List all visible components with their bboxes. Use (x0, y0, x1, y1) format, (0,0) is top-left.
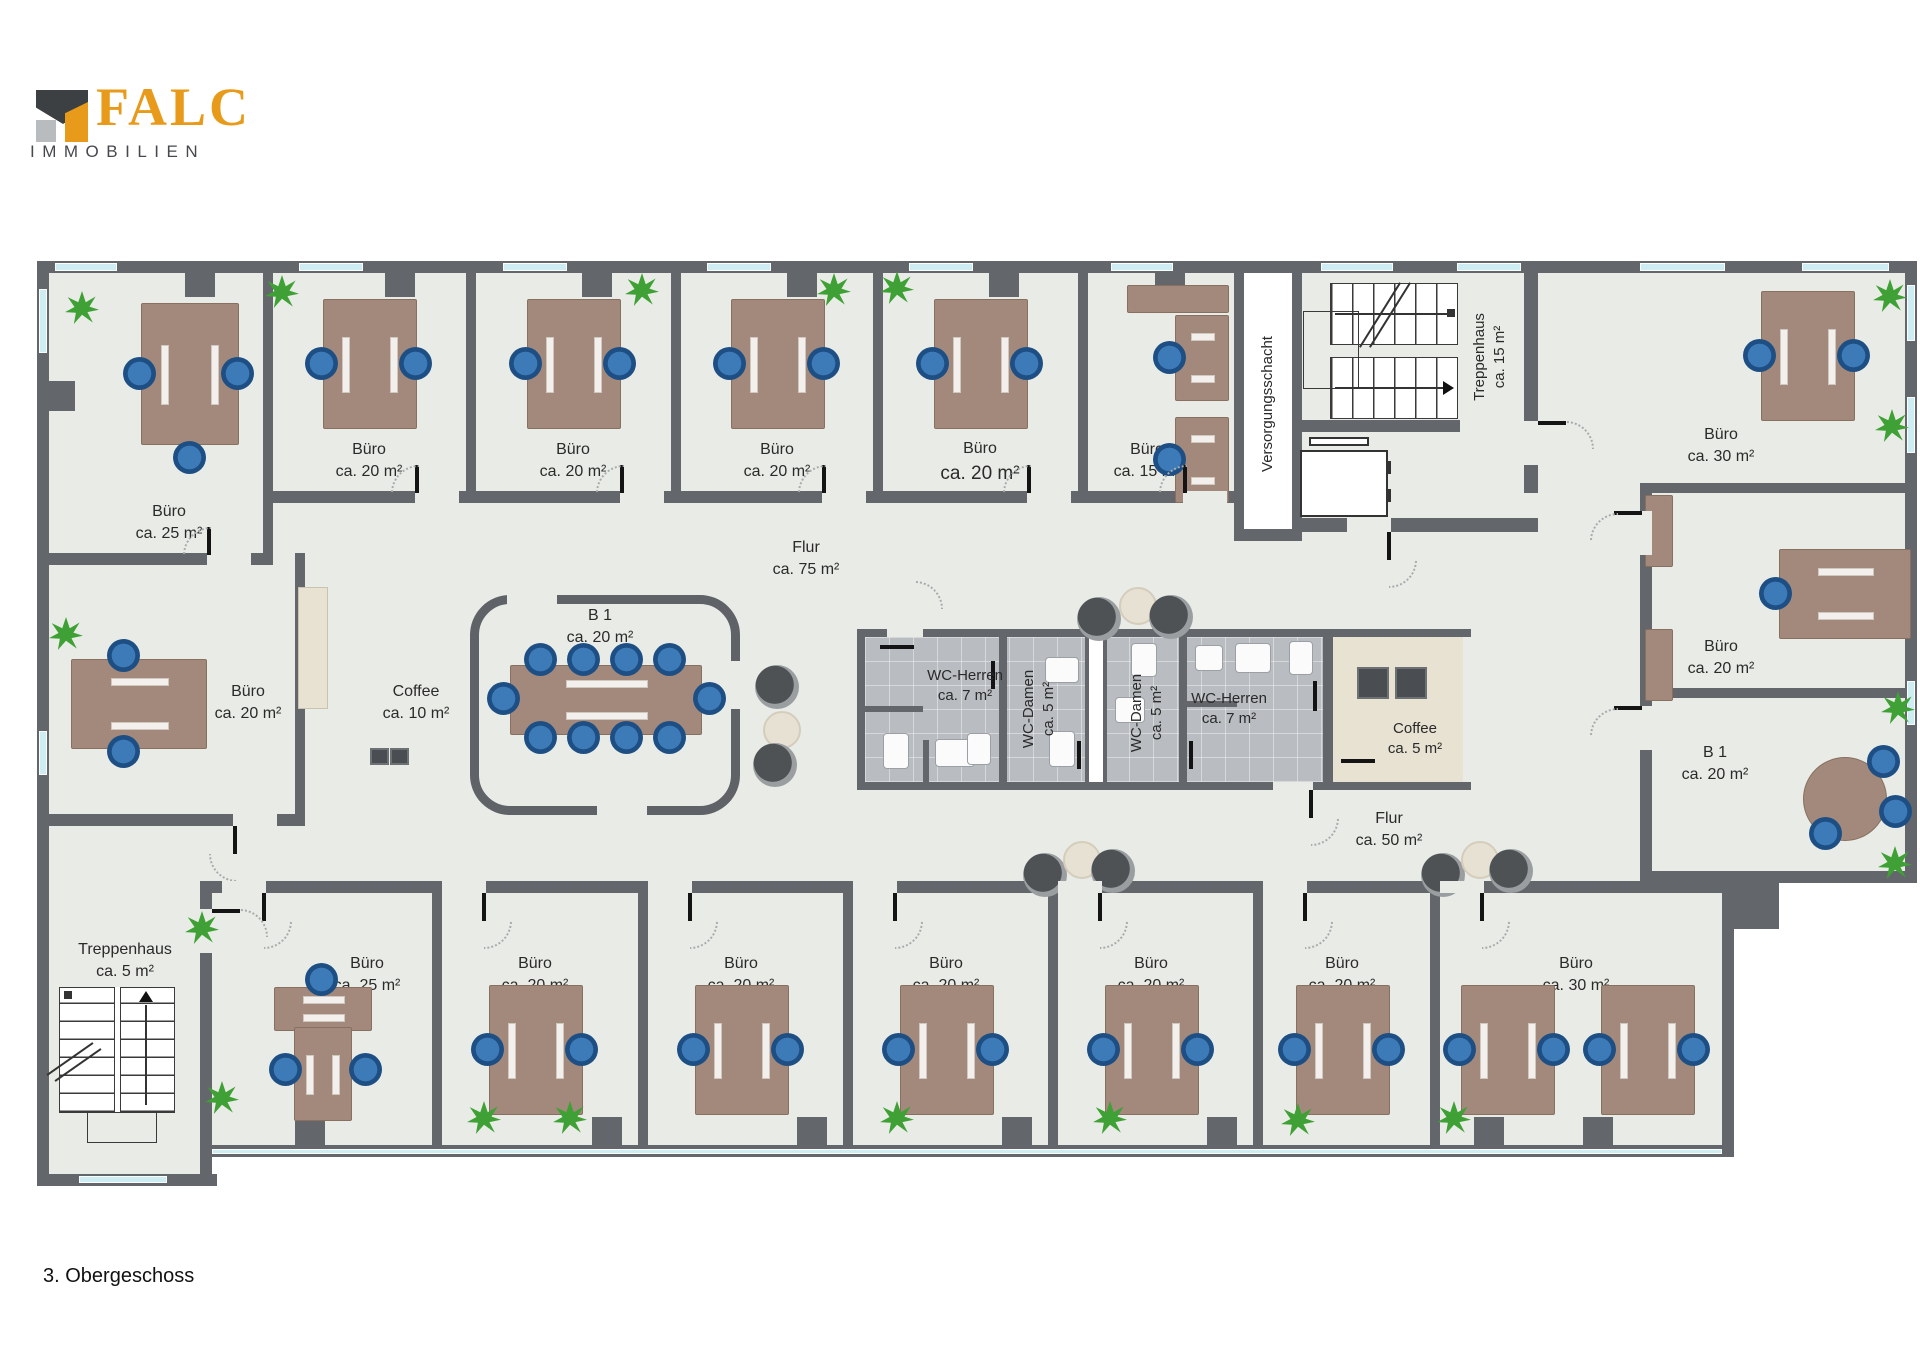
door-opening (1440, 881, 1484, 893)
room-area: ca. 20 m² (1688, 658, 1755, 680)
chair-icon (471, 1033, 504, 1066)
pillar (49, 381, 75, 411)
shaft-label: Versorgungsschacht (1258, 336, 1278, 472)
room-label: WC-Damen ca. 5 m² (1019, 670, 1059, 748)
window (1640, 263, 1725, 271)
stair-guide-line (145, 1005, 147, 1105)
room-area: ca. 5 m² (1147, 674, 1167, 752)
stair-start-dot (1447, 309, 1455, 317)
chair-icon (565, 1033, 598, 1066)
door-leaf (1614, 706, 1642, 710)
chair-icon (349, 1053, 382, 1086)
stool (370, 748, 389, 765)
chair-icon (693, 682, 726, 715)
logo-brand-text: FALC (96, 76, 251, 138)
room-name: WC-Herren (927, 666, 1003, 686)
chair-icon (107, 639, 140, 672)
door-opening (853, 881, 897, 893)
lounge-chair-icon (1489, 849, 1533, 893)
chair-icon (610, 721, 643, 754)
window (1802, 263, 1889, 271)
room-name: Treppenhaus (78, 939, 172, 961)
chair-icon (173, 441, 206, 474)
stair-start-dot (64, 991, 72, 999)
wall (843, 893, 853, 1145)
desk (294, 1027, 352, 1121)
door-opening (1524, 421, 1538, 465)
stool (390, 748, 409, 765)
room-name: Coffee (383, 681, 450, 703)
pillar (295, 1117, 325, 1145)
wall (1430, 893, 1440, 1145)
room-name: Büro (1688, 424, 1755, 446)
door-leaf (1480, 893, 1484, 921)
wall (1292, 518, 1538, 532)
floor-plan-page: FALC IMMOBILIEN (0, 0, 1920, 1357)
room-name: Büro (1309, 953, 1376, 975)
stair-arrow-icon (1443, 381, 1454, 395)
door-opening (1027, 491, 1071, 503)
wall (263, 273, 273, 565)
room-label: Büro ca. 20 m² (1688, 636, 1755, 680)
chair-icon (399, 347, 432, 380)
door-opening (1263, 881, 1307, 893)
room-name: Büro (708, 953, 775, 975)
chair-icon (653, 721, 686, 754)
window (1457, 263, 1521, 271)
toilet-icon (967, 733, 991, 765)
chair-icon (221, 357, 254, 390)
window (1907, 681, 1915, 725)
room-name: WC-Damen (1127, 674, 1147, 752)
room-area: ca. 7 m² (1191, 709, 1267, 729)
chair-icon (677, 1033, 710, 1066)
wall (923, 740, 929, 782)
wall (1640, 688, 1905, 698)
room-label: Coffee ca. 10 m² (383, 681, 450, 725)
room-name: Büro (215, 681, 282, 703)
wall (1253, 893, 1263, 1145)
room-area: ca. 30 m² (1688, 446, 1755, 468)
wall (1722, 883, 1734, 1157)
room-area: ca. 5 m² (1039, 670, 1059, 748)
chair-icon (610, 643, 643, 676)
stair-flight (119, 987, 175, 1113)
chair-icon (976, 1033, 1009, 1066)
room-name: Büro (136, 501, 203, 523)
chair-icon (1677, 1033, 1710, 1066)
pillar (385, 273, 415, 297)
door-leaf (1303, 893, 1307, 921)
door-leaf (482, 893, 486, 921)
door-opening (1058, 881, 1102, 893)
wall (1179, 637, 1187, 782)
chair-icon (1583, 1033, 1616, 1066)
stair-guide-line (1335, 313, 1451, 315)
elevator-notch (1386, 489, 1391, 502)
stair-flight (59, 987, 115, 1113)
room-name: Büro (940, 436, 1019, 461)
chair-icon (123, 357, 156, 390)
falc-logo-icon (36, 90, 88, 142)
door-leaf (893, 893, 897, 921)
elevator (1300, 450, 1388, 517)
desk (71, 659, 207, 749)
chair-icon (1879, 795, 1912, 828)
room-name: Büro (334, 953, 401, 975)
lounge-chair-icon (755, 665, 799, 709)
window (1111, 263, 1173, 271)
door-opening (1640, 706, 1652, 750)
room-area: ca. 20 m² (540, 461, 607, 483)
chair-icon (1278, 1033, 1311, 1066)
room-area: ca. 75 m² (773, 559, 840, 581)
door-leaf (880, 645, 914, 649)
pillar (185, 273, 215, 297)
floor-title: 3. Obergeschoss (43, 1265, 194, 1288)
door-leaf (1387, 532, 1391, 560)
room-area: ca. 5 m² (78, 961, 172, 983)
wall (857, 629, 865, 790)
chair-icon (524, 721, 557, 754)
door-opening (822, 491, 866, 503)
pillar (1474, 1117, 1504, 1145)
corridor-label: Flur ca. 50 m² (1356, 808, 1423, 852)
wall (37, 261, 49, 1174)
room-label: Büro ca. 30 m² (1688, 424, 1755, 468)
toilet-icon (1131, 643, 1157, 677)
room-label: Treppenhaus ca. 5 m² (78, 939, 172, 983)
room-name: Büro (502, 953, 569, 975)
room-name: Flur (1356, 808, 1423, 830)
wall (1300, 420, 1460, 432)
door-opening (1640, 511, 1652, 555)
coffee-counter (298, 587, 328, 709)
toilet-icon (1195, 645, 1223, 671)
chair-icon (509, 347, 542, 380)
pillar (592, 1117, 622, 1145)
chair-icon (771, 1033, 804, 1066)
pillar (582, 273, 612, 297)
room-label: Büro ca. 20 m² (540, 439, 607, 483)
door-opening (233, 814, 277, 826)
wall (1085, 637, 1089, 782)
door-leaf (1098, 893, 1102, 921)
room-name: Büro (1543, 953, 1610, 975)
chair-icon (269, 1053, 302, 1086)
corridor-label: Flur ca. 75 m² (773, 537, 840, 581)
window (909, 263, 973, 271)
chair-icon (107, 735, 140, 768)
chair-icon (1372, 1033, 1405, 1066)
pillar (989, 273, 1019, 297)
room-name: Flur (773, 537, 840, 559)
wall (1640, 483, 1905, 493)
room-label: WC-Damen ca. 5 m² (1127, 674, 1167, 752)
wall (1734, 883, 1779, 929)
logo-subtitle-text: IMMOBILIEN (30, 142, 205, 162)
wc-vestibule (1089, 637, 1103, 782)
lounge-chair-icon (1077, 597, 1121, 641)
stool (1357, 667, 1389, 699)
elevator-door (1309, 437, 1369, 446)
sink-icon (1235, 643, 1271, 673)
stair-arrow-icon (139, 991, 153, 1002)
wall (466, 273, 476, 491)
wall (865, 706, 923, 712)
door-leaf (1538, 421, 1566, 425)
desk (1779, 549, 1911, 639)
chair-icon (1809, 817, 1842, 850)
chair-icon (1743, 339, 1776, 372)
chair-icon (305, 963, 338, 996)
chair-icon (305, 347, 338, 380)
pillar (1207, 1117, 1237, 1145)
room-label: Büro ca. 20 m² (215, 681, 282, 725)
door-opening (442, 881, 486, 893)
cabinet (1645, 629, 1673, 701)
wall-gap (730, 661, 740, 709)
chair-icon (567, 721, 600, 754)
room-label: Büro ca. 20 m² (744, 439, 811, 483)
room-area: ca. 20 m² (1682, 764, 1749, 786)
door-opening (1273, 782, 1313, 790)
stair-top-label: Treppenhaus ca. 15 m² (1470, 313, 1510, 401)
door-opening (1183, 491, 1227, 503)
room-area: ca. 50 m² (1356, 830, 1423, 852)
door-leaf (1614, 511, 1642, 515)
door-opening (620, 491, 664, 503)
door-leaf (1077, 741, 1081, 769)
chair-icon (1087, 1033, 1120, 1066)
wall-gap (597, 805, 647, 815)
stair-landing (1303, 311, 1359, 389)
chair-icon (1867, 745, 1900, 778)
door-opening (222, 881, 266, 893)
wall (432, 893, 442, 1145)
window (55, 263, 117, 271)
wall (1234, 273, 1244, 541)
room-area: ca. 10 m² (383, 703, 450, 725)
room-name: Büro (744, 439, 811, 461)
door-leaf (212, 909, 240, 913)
wall (1103, 637, 1107, 782)
door-leaf (1189, 741, 1193, 769)
wall (999, 637, 1007, 782)
window (1907, 397, 1915, 453)
chair-icon (603, 347, 636, 380)
pillar (1583, 1117, 1613, 1145)
chair-icon (916, 347, 949, 380)
door-opening (648, 881, 692, 893)
chair-icon (487, 682, 520, 715)
stair-guide-line (1335, 387, 1445, 389)
lounge-chair-icon (753, 743, 797, 787)
room-area: ca. 15 m² (1490, 313, 1510, 401)
wall (873, 273, 883, 491)
chair-icon (713, 347, 746, 380)
wall (1078, 273, 1088, 491)
wall (857, 782, 1471, 790)
pillar (797, 1117, 827, 1145)
wall (638, 893, 648, 1145)
door-opening (887, 629, 923, 637)
room-label: Büro ca. 20 m² (336, 439, 403, 483)
chair-icon (1010, 347, 1043, 380)
window (212, 1149, 1722, 1154)
room-name: Treppenhaus (1470, 313, 1490, 401)
wall (671, 273, 681, 491)
room-name: Büro (1118, 953, 1185, 975)
window (1321, 263, 1393, 271)
room-name: B 1 (1682, 742, 1749, 764)
room-area: ca. 20 m² (336, 461, 403, 483)
room-area: ca. 7 m² (927, 686, 1003, 706)
window (39, 289, 47, 353)
room-name: Büro (540, 439, 607, 461)
room-label: WC-Herren ca. 7 m² (927, 666, 1003, 706)
chair-icon (1153, 341, 1186, 374)
room-name: Büro (913, 953, 980, 975)
wall (1048, 893, 1058, 1145)
stair-rail (114, 987, 121, 1113)
room-name: WC-Damen (1019, 670, 1039, 748)
room-name: WC-Herren (1191, 689, 1267, 709)
lounge-chair-icon (1149, 595, 1193, 639)
floor-plan: Büro ca. 25 m² Büro ca. 20 m² Büro ca. 2… (37, 261, 1917, 1190)
chair-icon (1537, 1033, 1570, 1066)
pillar (787, 273, 817, 297)
window (299, 263, 363, 271)
room-label: WC-Herren ca. 7 m² (1191, 689, 1267, 729)
window (1907, 285, 1915, 341)
window (79, 1176, 167, 1183)
chair-icon (1181, 1033, 1214, 1066)
door-leaf (262, 893, 266, 921)
door-leaf (1313, 681, 1317, 711)
chair-icon (653, 643, 686, 676)
pillar (1002, 1117, 1032, 1145)
window (707, 263, 771, 271)
room-area: ca. 20 m² (215, 703, 282, 725)
room-name: Büro (1688, 636, 1755, 658)
door-leaf (688, 893, 692, 921)
stool (1395, 667, 1427, 699)
toilet-icon (883, 733, 909, 769)
chair-icon (1837, 339, 1870, 372)
chair-icon (1443, 1033, 1476, 1066)
room-area: ca. 5 m² (1388, 739, 1442, 759)
chair-icon (524, 643, 557, 676)
door-opening (207, 553, 251, 565)
wall-gap (507, 595, 557, 605)
window (39, 731, 47, 775)
door-leaf (1341, 759, 1375, 763)
door-opening (1347, 518, 1391, 532)
stair-landing (87, 1112, 157, 1143)
room-name: Büro (336, 439, 403, 461)
elevator-notch (1386, 461, 1391, 474)
logo-gray-shape (36, 120, 56, 142)
chair-icon (807, 347, 840, 380)
room-label: B 1 ca. 20 m² (1682, 742, 1749, 786)
door-leaf (1309, 790, 1313, 818)
chair-icon (567, 643, 600, 676)
room-label: Coffee ca. 5 m² (1388, 719, 1442, 759)
shelf (1127, 285, 1229, 313)
room-name: Coffee (1388, 719, 1442, 739)
chair-icon (882, 1033, 915, 1066)
window (503, 263, 567, 271)
chair-icon (1759, 577, 1792, 610)
door-opening (415, 491, 459, 503)
toilet-icon (1289, 641, 1313, 675)
door-leaf (233, 826, 237, 854)
wall (1323, 629, 1333, 790)
